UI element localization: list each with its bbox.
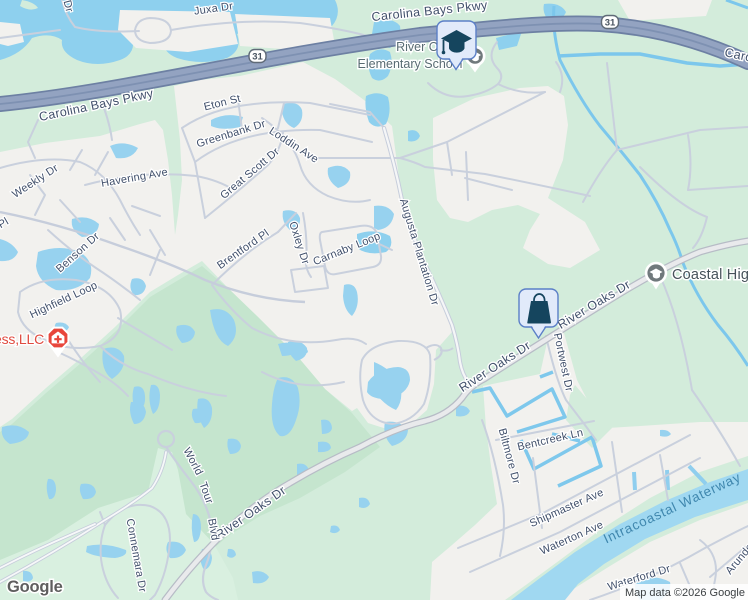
svg-text:31: 31: [252, 52, 263, 63]
svg-text:31: 31: [605, 18, 616, 29]
svg-text:Map data ©2026 Google: Map data ©2026 Google: [625, 587, 745, 599]
svg-text:Coastal Highwa: Coastal Highwa: [672, 267, 748, 283]
svg-text:ess,LLC: ess,LLC: [0, 331, 44, 347]
svg-text:Google: Google: [7, 578, 63, 596]
